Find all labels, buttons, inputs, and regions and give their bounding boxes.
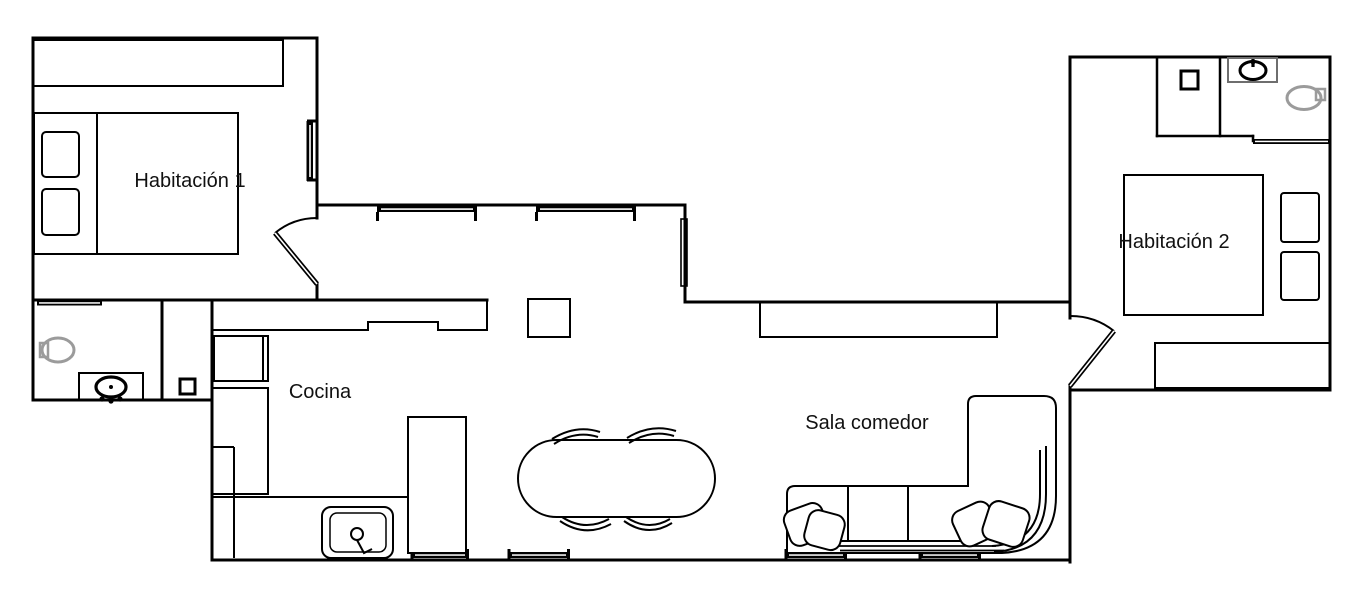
window-icon	[508, 549, 571, 559]
dining-chair-icon	[624, 517, 672, 530]
door-swing-icon	[1070, 316, 1114, 386]
kitchen-sink-icon	[322, 507, 393, 558]
kitchen-cabinet	[214, 336, 268, 381]
bed-pillow	[42, 189, 79, 235]
window-icon	[307, 120, 318, 182]
dining-table	[518, 440, 715, 517]
kitchen-counter-top	[212, 301, 487, 330]
sala-comedor-furniture	[518, 299, 1056, 553]
refrigerator	[408, 417, 466, 553]
washbasin-icon	[96, 377, 126, 404]
dining-chair-icon	[560, 517, 611, 530]
window-icon	[535, 206, 636, 222]
kitchen-cabinet	[212, 388, 268, 494]
washbasin-icon	[1228, 58, 1277, 82]
room-label-sala-comedor: Sala comedor	[805, 412, 929, 434]
sideboard	[760, 302, 997, 337]
habitacion-1-furniture	[33, 40, 283, 254]
kitchen-corner-cabinet-line	[212, 447, 234, 558]
room-label-habitacion-2: Habitación 2	[1118, 231, 1229, 253]
wardrobe	[33, 40, 283, 86]
bed-pillow	[1281, 252, 1319, 300]
bathroom-1	[40, 338, 195, 404]
bed-pillow	[1281, 193, 1319, 242]
toilet-icon	[40, 338, 74, 362]
bathroom-2	[1181, 58, 1325, 110]
habitacion-2-furniture	[1124, 175, 1330, 388]
door-swing-icon	[275, 218, 317, 284]
floor-plan-canvas: Habitación 1 Cocina Sala comedor Habitac…	[0, 0, 1360, 598]
room-label-habitacion-1: Habitación 1	[134, 170, 245, 192]
floor-plan: Habitación 1 Cocina Sala comedor Habitac…	[0, 0, 1360, 598]
side-table	[528, 299, 570, 337]
toilet-icon	[1287, 87, 1325, 110]
water-heater-icon	[180, 379, 195, 394]
window-icon	[376, 206, 477, 222]
sliding-door-icon	[1253, 139, 1330, 144]
bed-pillow	[42, 132, 79, 177]
kitchen	[212, 301, 487, 558]
dresser	[1155, 343, 1330, 388]
room-label-cocina: Cocina	[289, 381, 352, 403]
sliding-door-icon	[37, 301, 102, 306]
shower-unit-icon	[1181, 71, 1198, 89]
